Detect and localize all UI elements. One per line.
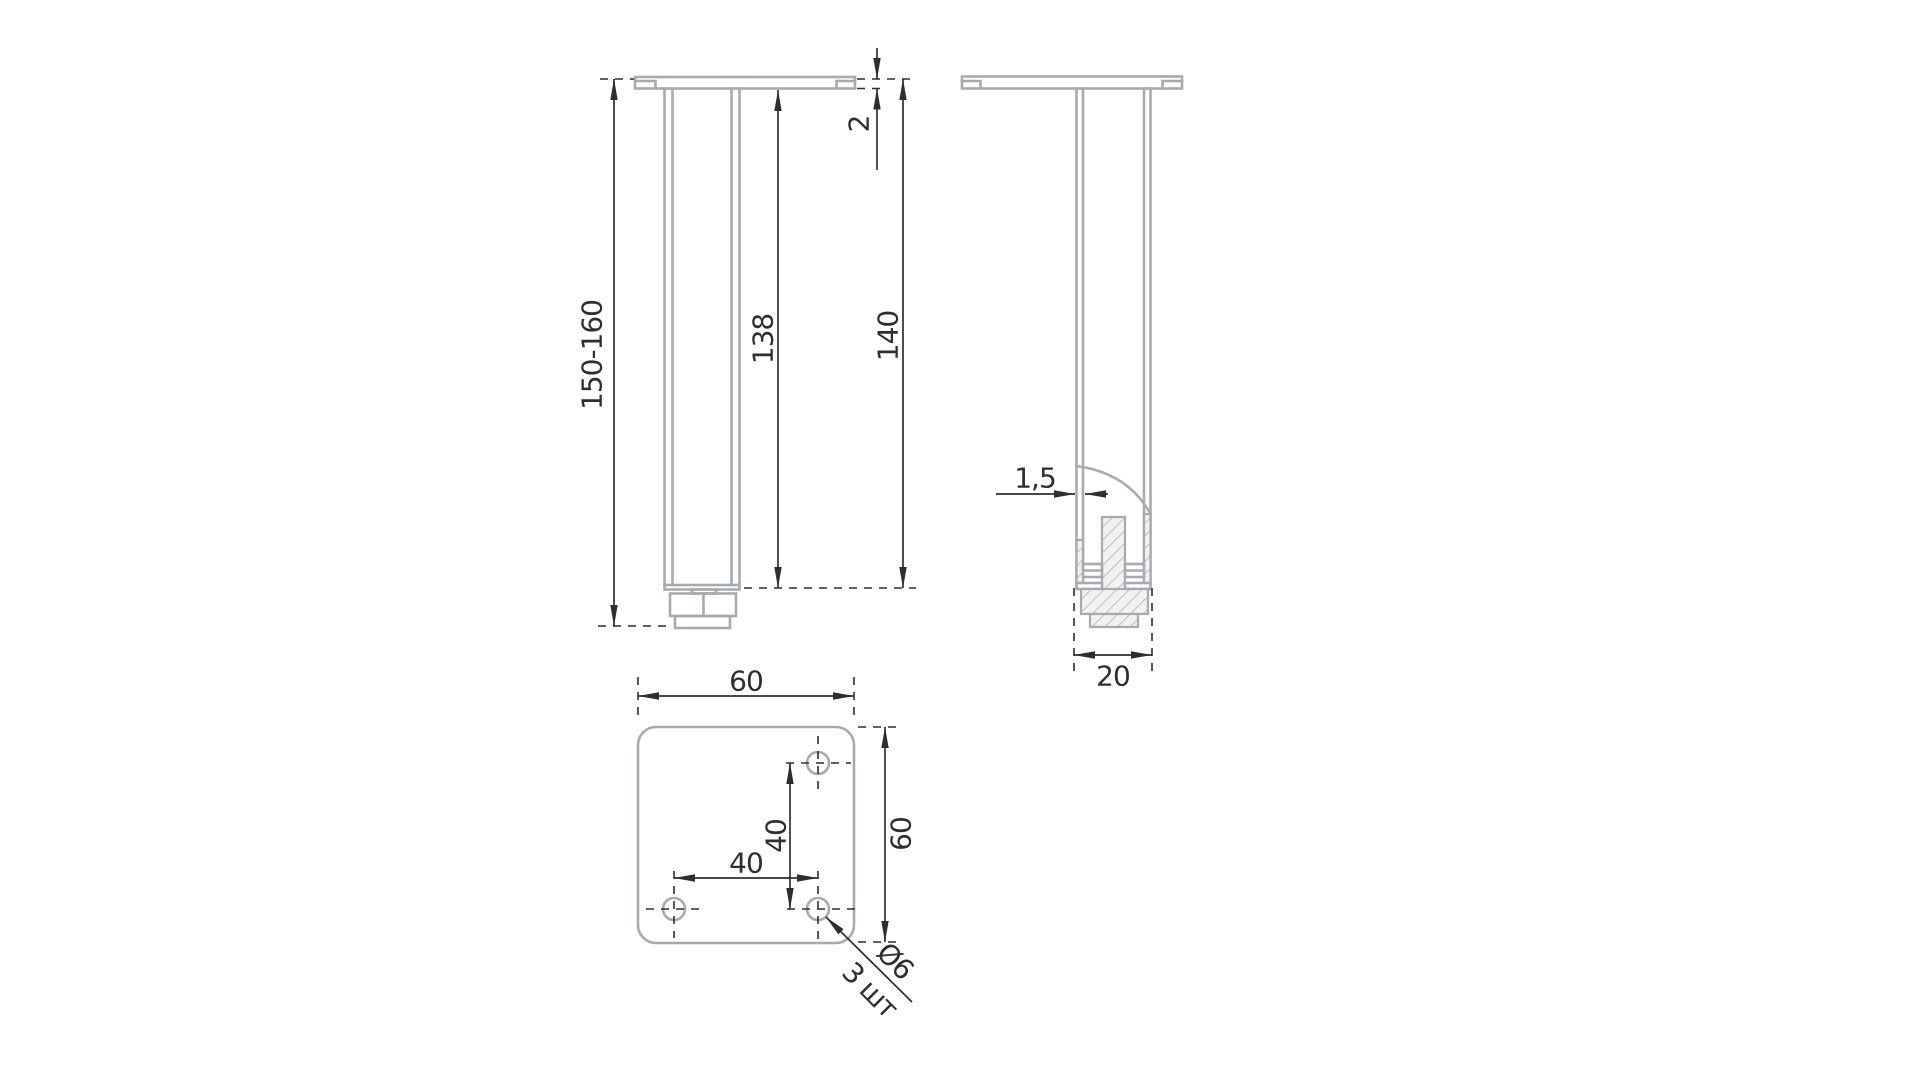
dimension-label-adjustable-height: 150-160 [576,300,609,410]
technical-drawing: 150-160 138 140 2 [0,0,1924,1082]
break-line [1077,466,1151,514]
dimension-wall-thickness: 1,5 [996,462,1108,495]
leg-tube-front [665,89,740,590]
dimension-label-hole-pitch-horizontal: 40 [729,847,763,880]
dimension-label-hole-pitch-vertical: 40 [760,819,793,853]
foot-step-section [1090,614,1138,627]
foot-flange-section [1081,589,1148,614]
dimension-label-fixed-length: 140 [872,311,905,361]
dimension-plate-depth: 60 [858,727,918,942]
dimension-adjustable-height: 150-160 [576,79,672,626]
side-view: 1,5 20 [962,77,1182,693]
adjuster-bolt-section [1102,517,1125,592]
front-view: 150-160 138 140 2 [576,48,917,628]
adjustable-foot-front [670,590,736,629]
mounting-plate-side [962,77,1182,89]
top-view: 60 60 40 40 Ø6 3 шт [638,665,920,1026]
dimension-label-tube-length: 138 [747,314,780,364]
mounting-plate-front [635,77,855,89]
dimension-label-plate-width: 60 [729,665,763,698]
dimension-tube-length: 138 [747,90,780,588]
dimension-label-plate-depth: 60 [885,817,918,851]
dimension-label-tube-width: 20 [1096,660,1130,693]
dimension-plate-thickness: 2 [843,48,888,170]
leg-tube-side [1077,89,1151,584]
dimension-label-plate-thickness: 2 [843,116,876,133]
dimension-label-wall-thickness: 1,5 [1014,462,1056,495]
dimension-plate-width: 60 [638,665,854,723]
section-cut [1077,466,1151,627]
